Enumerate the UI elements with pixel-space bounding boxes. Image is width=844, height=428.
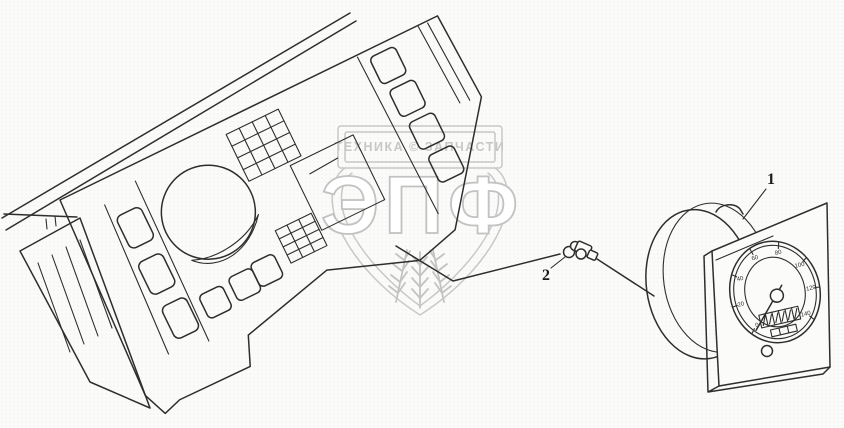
speed-sensor: [564, 241, 599, 261]
speedometer-assembly: 0 20 40 60 80 100 120 140: [636, 196, 830, 392]
switch-column: [114, 205, 200, 341]
leader-line-callout-1: [743, 189, 766, 219]
parts-diagram-canvas: ТЕХНИКА © ЗАПЧАСТИ ЭПФ: [0, 0, 844, 428]
callout-2-label: 2: [542, 267, 550, 284]
watermark-shield: ТЕХНИКА © ЗАПЧАСТИ ЭПФ: [321, 126, 523, 315]
parts-diagram-page: ТЕХНИКА © ЗАПЧАСТИ ЭПФ: [0, 0, 844, 428]
leader-line-callout-2: [551, 257, 565, 268]
callout-1-label: 1: [767, 171, 775, 188]
watermark-monogram: ЭПФ: [321, 160, 523, 251]
hatch-grid: [275, 213, 327, 263]
keypad-grid: [226, 109, 301, 181]
windshield-lines: [2, 13, 356, 230]
